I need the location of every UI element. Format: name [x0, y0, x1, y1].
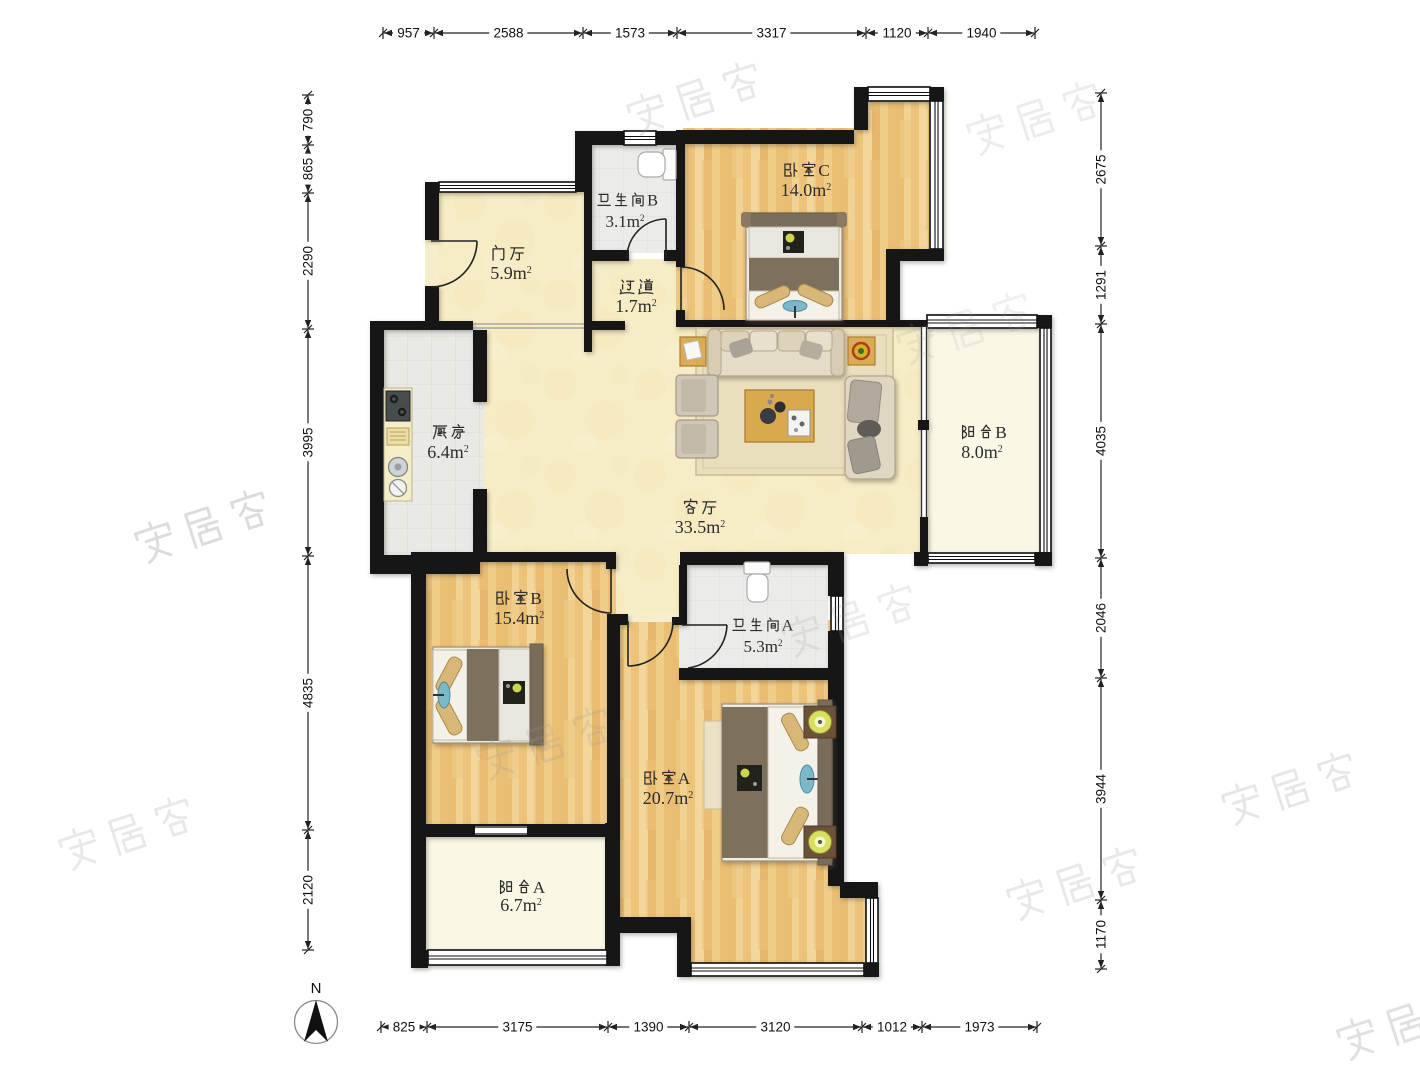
svg-text:957: 957 — [397, 26, 420, 41]
svg-text:4835: 4835 — [301, 678, 316, 708]
svg-text:3120: 3120 — [760, 1020, 790, 1035]
svg-text:3.1m2: 3.1m2 — [606, 212, 645, 231]
svg-text:2290: 2290 — [301, 246, 316, 276]
svg-text:15.4m2: 15.4m2 — [494, 608, 545, 628]
svg-text:790: 790 — [301, 109, 316, 132]
svg-text:2046: 2046 — [1094, 603, 1109, 633]
svg-text:1012: 1012 — [877, 1020, 907, 1035]
svg-text:5.9m2: 5.9m2 — [490, 263, 532, 283]
svg-text:865: 865 — [301, 158, 316, 181]
svg-text:1291: 1291 — [1094, 270, 1109, 300]
svg-text:1.7m2: 1.7m2 — [615, 296, 657, 316]
svg-text:2588: 2588 — [493, 26, 523, 41]
svg-text:5.3m2: 5.3m2 — [744, 637, 783, 656]
svg-text:1170: 1170 — [1094, 920, 1109, 949]
svg-text:3175: 3175 — [502, 1020, 532, 1035]
svg-text:1973: 1973 — [964, 1020, 994, 1035]
svg-text:A: A — [533, 878, 546, 897]
svg-text:1120: 1120 — [882, 26, 911, 41]
svg-text:4035: 4035 — [1094, 426, 1109, 456]
svg-text:3995: 3995 — [301, 427, 316, 457]
svg-text:2120: 2120 — [301, 875, 316, 905]
svg-text:825: 825 — [393, 1020, 416, 1035]
svg-text:C: C — [818, 161, 830, 180]
svg-text:6.4m2: 6.4m2 — [427, 442, 469, 462]
svg-text:20.7m2: 20.7m2 — [643, 788, 694, 808]
svg-text:8.0m2: 8.0m2 — [961, 442, 1003, 462]
svg-text:1573: 1573 — [615, 26, 645, 41]
svg-text:2675: 2675 — [1094, 154, 1109, 184]
svg-text:B: B — [995, 423, 1007, 442]
svg-text:N: N — [311, 980, 322, 997]
svg-text:6.7m2: 6.7m2 — [500, 895, 542, 915]
svg-text:B: B — [530, 589, 542, 608]
svg-text:14.0m2: 14.0m2 — [781, 180, 832, 200]
svg-text:A: A — [678, 769, 691, 788]
svg-text:B: B — [647, 191, 658, 210]
svg-text:1390: 1390 — [633, 1020, 663, 1035]
svg-text:33.5m2: 33.5m2 — [675, 517, 726, 537]
svg-text:3317: 3317 — [756, 26, 786, 41]
svg-text:3944: 3944 — [1094, 773, 1109, 804]
svg-text:1940: 1940 — [966, 26, 996, 41]
